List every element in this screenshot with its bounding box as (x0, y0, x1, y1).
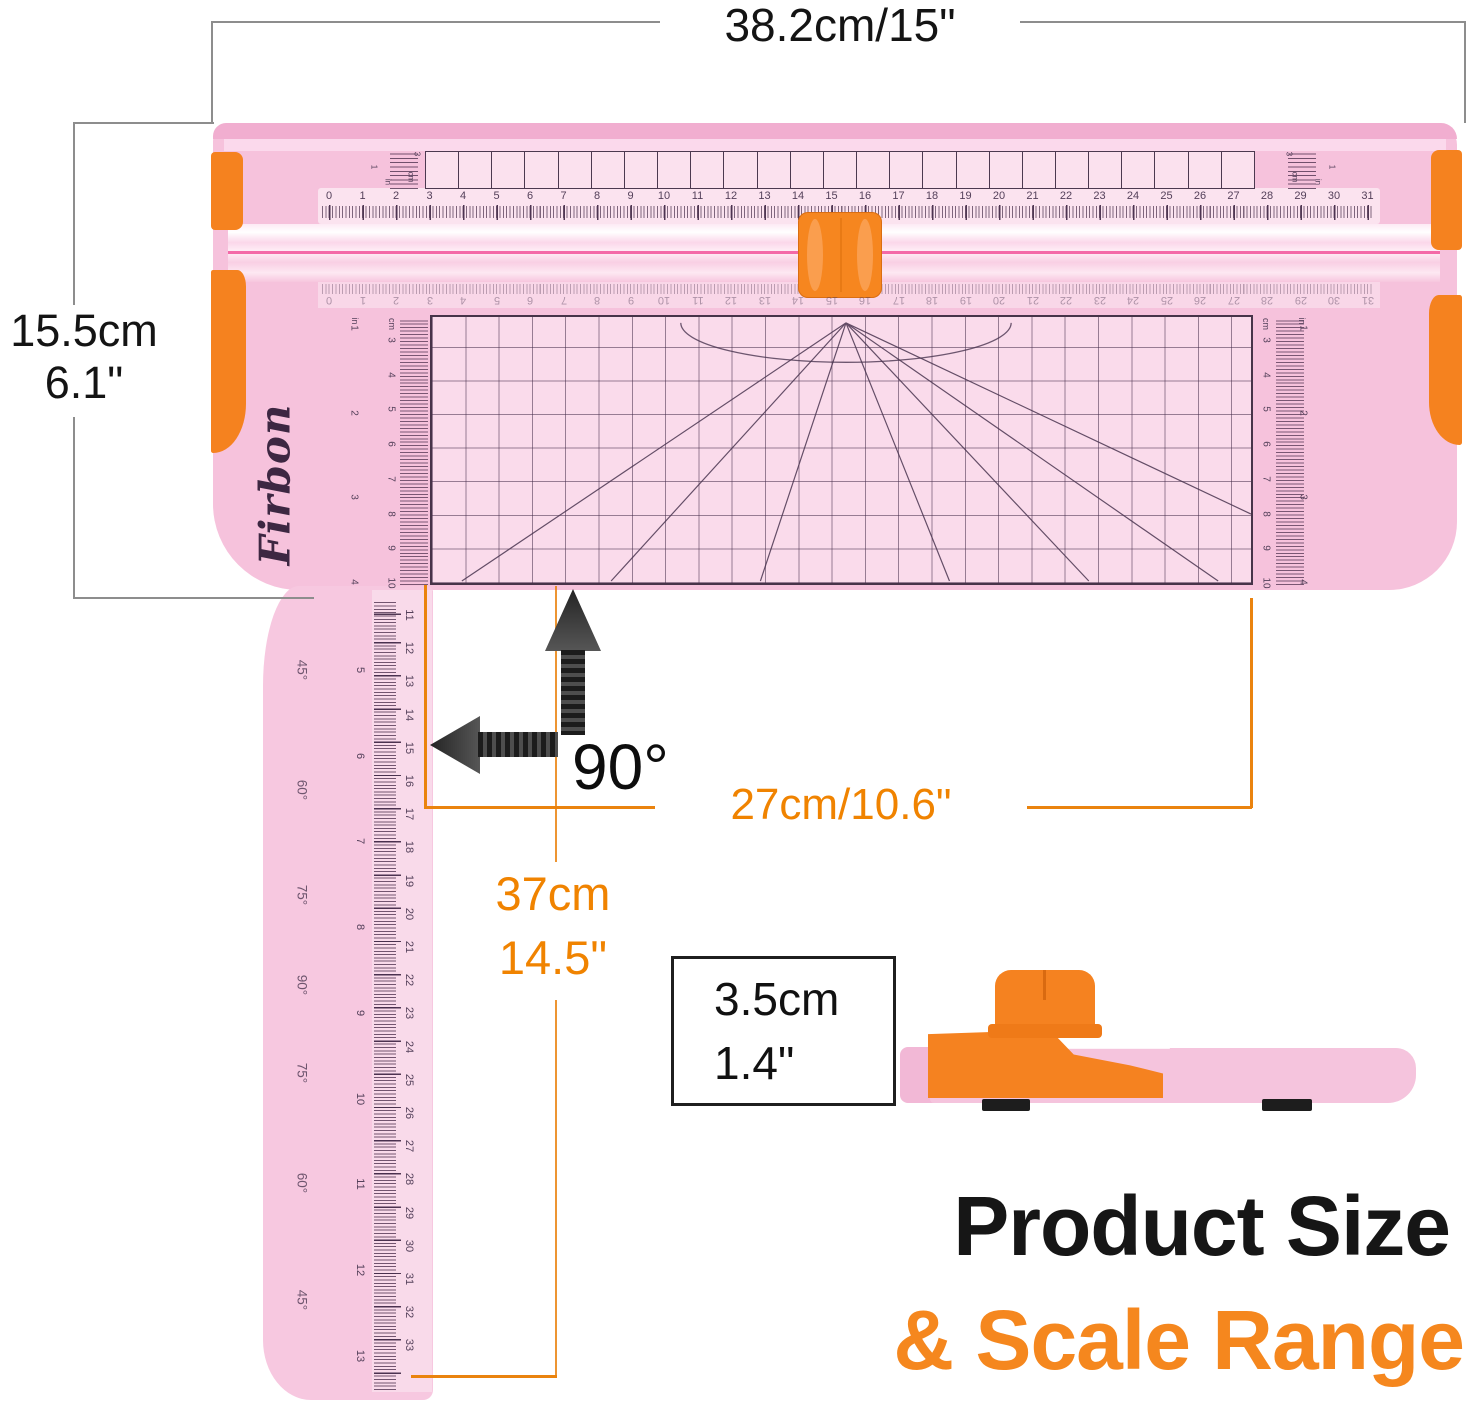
base-cm-number: 5 (386, 407, 397, 413)
base-inch-number: 4 (1298, 579, 1309, 585)
side-knob-flange (988, 1024, 1102, 1038)
arm-inch-number: 5 (354, 667, 366, 673)
dim-cut-label: 27cm/10.6" (655, 776, 1027, 836)
grid-cell (591, 152, 624, 188)
ruler-number-mirror: 3 (426, 294, 432, 306)
ruler-number: 2 (393, 190, 399, 202)
ruler-number: 16 (859, 190, 871, 202)
mini-scale-label: 1 (370, 165, 379, 169)
ruler-number-mirror: 5 (493, 294, 499, 306)
rail-top-edge (213, 123, 1457, 139)
grid-cell (458, 152, 491, 188)
arm-cm-number: 22 (403, 974, 415, 986)
base-cm-number: 4 (1261, 372, 1272, 378)
ruler-number-mirror: 8 (594, 294, 600, 306)
ruler-number-mirror: 16 (859, 294, 871, 306)
ruler-number-mirror: 20 (993, 294, 1005, 306)
dim-top-left-extension (211, 21, 213, 123)
title-line1: Product Size (0, 1178, 1460, 1275)
ruler-number-mirror: 9 (627, 294, 633, 306)
mini-scale-label: cm (407, 172, 416, 183)
grid-cell (624, 152, 657, 188)
ruler-number-mirror: 2 (393, 294, 399, 306)
product-size-diagram: 38.2cm/15" 15.5cm 6.1" (0, 0, 1470, 1403)
ruler-number-mirror: 0 (326, 294, 332, 306)
base-inch-number: 1 (349, 325, 360, 331)
grid-cell (1088, 152, 1121, 188)
grid-cell (524, 152, 557, 188)
slider-right-highlight (857, 219, 873, 291)
ruler-number-mirror: 17 (892, 294, 904, 306)
ruler-number-mirror: 1 (359, 294, 365, 306)
angle-label: 90° (295, 975, 310, 995)
arm-cm-number: 14 (403, 708, 415, 720)
base-inch-number: 4 (349, 579, 360, 585)
base-inch-number: 2 (349, 410, 360, 416)
angle-label: 75° (295, 1063, 310, 1083)
grid-cell (1188, 152, 1221, 188)
ruler-number-mirror: 15 (825, 294, 837, 306)
side-foot-right (1262, 1099, 1312, 1111)
arm-cm-number: 11 (403, 609, 415, 620)
dim-left-label-cm: 15.5cm (0, 305, 168, 357)
arm-cm-number: 23 (403, 1007, 415, 1019)
ruler-number: 18 (926, 190, 938, 202)
ruler-number: 6 (527, 190, 533, 202)
grid-cell (558, 152, 591, 188)
base-left-ticks (400, 318, 428, 585)
base-cm-number: 6 (386, 441, 397, 447)
base-cm-number: 10 (386, 577, 397, 588)
dim-arm-label: 37cm 14.5" (458, 862, 648, 1000)
slider-left-highlight (807, 219, 823, 291)
side-knob-notch (1043, 970, 1046, 1000)
mini-scale-right-ticks (1288, 152, 1316, 189)
arm-cm-number: 13 (403, 675, 415, 687)
arm-inch-number: 6 (354, 753, 366, 759)
base-inch-number: 3 (349, 495, 360, 501)
base-cm-number: 7 (1261, 476, 1272, 482)
ruler-number: 24 (1127, 190, 1139, 202)
unit-label-cm: cm (387, 318, 397, 330)
rail-deck (224, 139, 1446, 151)
grid-cell (989, 152, 1022, 188)
ruler-number-mirror: 13 (758, 294, 770, 306)
arm-cm-number: 20 (403, 908, 415, 920)
ruler-number: 5 (493, 190, 499, 202)
mini-scale-label: 3 (413, 152, 422, 156)
mini-scale-label: 1 (1328, 165, 1337, 169)
mini-scale-label: in (1314, 179, 1323, 185)
unit-label-cm: cm (1261, 318, 1271, 330)
ruler-number-mirror: 18 (926, 294, 938, 306)
base-cm-number: 8 (386, 511, 397, 517)
ruler-number: 20 (993, 190, 1005, 202)
grid-cell (790, 152, 823, 188)
brand-logo-text: Firbon (251, 403, 300, 565)
grid-cell (1055, 152, 1088, 188)
arrow-left-icon (430, 716, 480, 774)
dim-cut-left-vertical (424, 585, 427, 808)
ruler-number-mirror: 11 (692, 294, 703, 306)
grid-cell (1154, 152, 1187, 188)
arm-cm-number: 18 (403, 841, 415, 853)
base-cm-number: 5 (1261, 407, 1272, 413)
grid-cell (426, 152, 458, 188)
thickness-box: 3.5cm 1.4" (671, 956, 896, 1106)
ruler-number-mirror: 23 (1093, 294, 1105, 306)
trimmer-side-view (900, 968, 1420, 1118)
mini-scale-label: 3 (1285, 152, 1294, 156)
ruler-number-mirror: 10 (658, 294, 670, 306)
angle-label: 60° (295, 780, 310, 800)
ruler-number-mirror: 6 (527, 294, 533, 306)
dim-cut-right-vertical (1250, 598, 1253, 808)
dim-top-label: 38.2cm/15" (660, 0, 1020, 52)
right-clamp-bottom (1429, 295, 1462, 445)
ruler-number: 4 (460, 190, 466, 202)
ruler-number-mirror: 27 (1227, 294, 1239, 306)
ruler-number: 22 (1060, 190, 1072, 202)
slider-seam (840, 218, 842, 292)
mini-scale-label: in (384, 179, 393, 185)
dim-arm-label-in: 14.5" (458, 926, 648, 990)
arm-cm-number: 26 (403, 1107, 415, 1119)
ruler-number-mirror: 25 (1160, 294, 1172, 306)
arm-cm-number: 25 (403, 1074, 415, 1086)
ruler-number: 26 (1194, 190, 1206, 202)
grid-cell (1221, 152, 1254, 188)
dim-left-bottom-line (74, 597, 314, 599)
ruler-number-mirror: 19 (959, 294, 971, 306)
base-inch-number: 3 (1298, 495, 1309, 501)
base-cm-number: 3 (386, 337, 397, 343)
protractor-fan (432, 317, 1251, 583)
ruler-number-mirror: 22 (1060, 294, 1072, 306)
ruler-number: 0 (326, 190, 332, 202)
cutter-slider (798, 212, 882, 298)
base-right-ticks (1276, 318, 1304, 585)
angle-label: 45° (295, 660, 310, 680)
ruler-number-mirror: 31 (1361, 294, 1373, 306)
ruler-number-mirror: 14 (792, 294, 804, 306)
base-cm-number: 9 (1261, 545, 1272, 551)
ruler-number: 27 (1227, 190, 1239, 202)
base-cm-number: 9 (386, 545, 397, 551)
base-cm-number: 10 (1261, 577, 1272, 588)
left-clamp-top (211, 152, 243, 230)
dim-arm-label-cm: 37cm (458, 862, 648, 926)
ruler-number-mirror: 12 (725, 294, 737, 306)
thickness-label-in: 1.4" (714, 1031, 893, 1095)
ruler-number: 31 (1361, 190, 1373, 202)
grid-cell (757, 152, 790, 188)
base-cm-number: 3 (1261, 337, 1272, 343)
ruler-number: 17 (892, 190, 904, 202)
base-cm-number: 8 (1261, 511, 1272, 517)
ruler-number: 8 (594, 190, 600, 202)
thickness-label-cm: 3.5cm (714, 967, 893, 1031)
ruler-number: 14 (792, 190, 804, 202)
side-foot-left (982, 1099, 1030, 1111)
grid-cell (922, 152, 955, 188)
arm-cm-number: 15 (403, 742, 415, 754)
arm-inch-number: 9 (354, 1010, 366, 1016)
ruler-number: 19 (959, 190, 971, 202)
ruler-number: 7 (560, 190, 566, 202)
ruler-number: 30 (1328, 190, 1340, 202)
square-scale-row (425, 151, 1255, 189)
unit-label-in: in (350, 317, 360, 324)
grid-cell (889, 152, 922, 188)
ruler-number-mirror: 30 (1328, 294, 1340, 306)
base-cm-number: 4 (386, 372, 397, 378)
grid-cell (856, 152, 889, 188)
ruler-number: 15 (825, 190, 837, 202)
ruler-number: 3 (426, 190, 432, 202)
grid-cell (1121, 152, 1154, 188)
grid-cell (657, 152, 690, 188)
arm-cm-number: 19 (403, 874, 415, 886)
arm-inch-number: 8 (354, 924, 366, 930)
ruler-number: 12 (725, 190, 737, 202)
ruler-number: 21 (1026, 190, 1038, 202)
brand-logo: Firbon (210, 393, 340, 575)
right-clamp-top (1431, 150, 1462, 250)
arm-cm-number: 17 (403, 808, 415, 820)
arm-cm-number: 21 (403, 941, 415, 953)
arm-inch-number: 7 (354, 838, 366, 844)
ruler-number: 10 (658, 190, 670, 202)
ruler-number: 9 (627, 190, 633, 202)
ruler-number: 28 (1261, 190, 1273, 202)
dim-top-right-extension (1464, 21, 1466, 123)
base-cm-number: 6 (1261, 441, 1272, 447)
arm-inch-number: 10 (354, 1092, 366, 1104)
mini-scale-label: cm (1291, 172, 1300, 183)
arrow-up-icon (545, 589, 601, 651)
grid-cell (723, 152, 756, 188)
ruler-number-mirror: 4 (460, 294, 466, 306)
ruler-number-mirror: 29 (1294, 294, 1306, 306)
ruler-number-mirror: 7 (560, 294, 566, 306)
title-line2: & Scale Range (0, 1292, 1467, 1389)
dim-left-label-in: 6.1" (0, 357, 168, 409)
unit-label-in: in (1297, 317, 1307, 324)
ruler-number-mirror: 21 (1026, 294, 1038, 306)
base-inch-number: 1 (1298, 325, 1309, 331)
arm-cm-number: 16 (403, 775, 415, 787)
arrow-up-shaft (561, 650, 585, 735)
ruler-number: 13 (758, 190, 770, 202)
ruler-number: 11 (692, 190, 703, 202)
grid-cell (823, 152, 856, 188)
arm-cm-number: 27 (403, 1140, 415, 1152)
arm-cm-number: 24 (403, 1040, 415, 1052)
ruler-number-mirror: 26 (1194, 294, 1206, 306)
ruler-number: 1 (359, 190, 365, 202)
arrow-left-shaft (478, 732, 558, 757)
dim-left-label: 15.5cm 6.1" (0, 305, 168, 417)
mini-scale-left-ticks (390, 152, 418, 189)
grid-cell (1022, 152, 1055, 188)
dim-left-top-line (74, 122, 214, 124)
ruler-number: 25 (1160, 190, 1172, 202)
grid-cell (491, 152, 524, 188)
arm-cm-number: 12 (403, 642, 415, 654)
ruler-number: 23 (1093, 190, 1105, 202)
ruler-number-mirror: 28 (1261, 294, 1273, 306)
grid-cell (690, 152, 723, 188)
grid-cell (956, 152, 989, 188)
grid-board (430, 315, 1253, 585)
ruler-number: 29 (1294, 190, 1306, 202)
base-inch-number: 2 (1298, 410, 1309, 416)
ruler-number-mirror: 24 (1127, 294, 1139, 306)
base-cm-number: 7 (386, 476, 397, 482)
angle-label: 75° (295, 885, 310, 905)
